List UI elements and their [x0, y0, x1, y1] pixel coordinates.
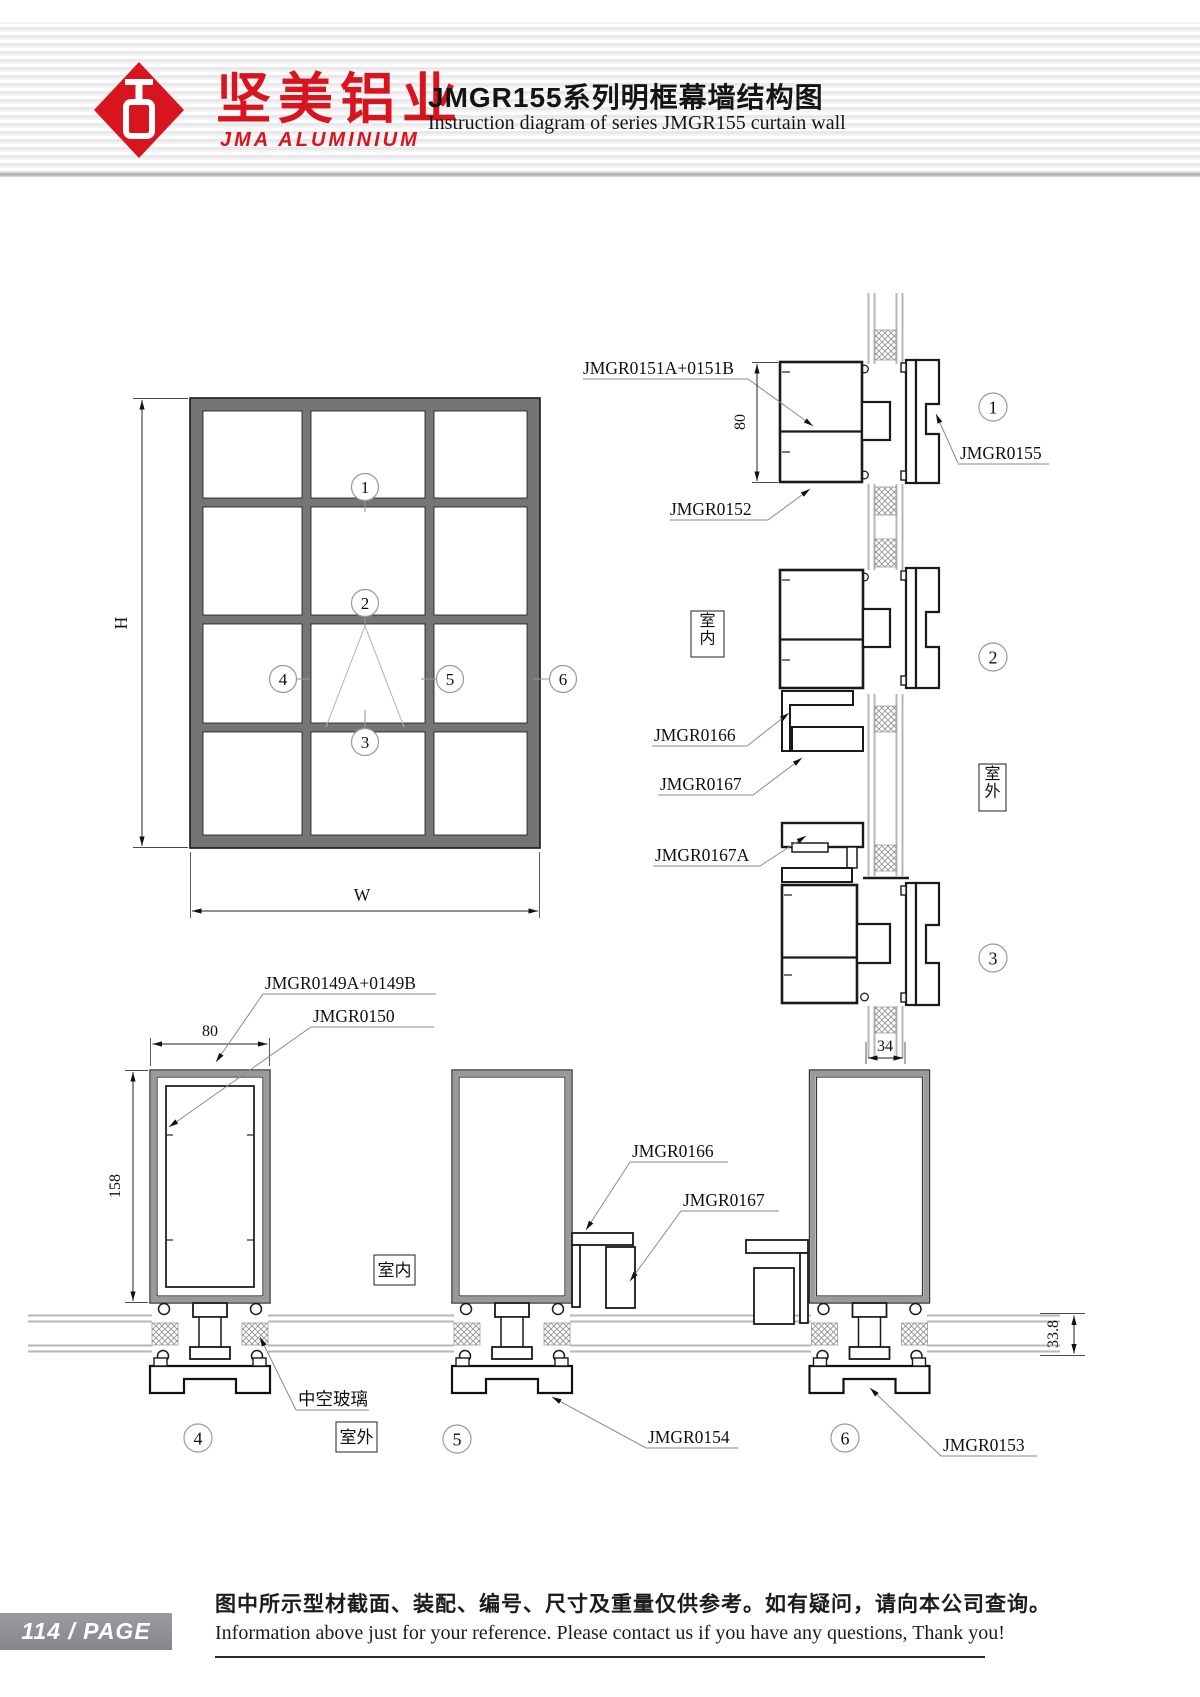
- detail-6-marker: 6: [841, 1429, 850, 1449]
- section-detail-5-structure: [452, 1070, 572, 1393]
- mullion-profile: [780, 362, 862, 482]
- vertical-section-details: JMGR0151A+0151B 80 JMGR0152 JMGR0155 1: [583, 293, 1049, 1064]
- elevation-drawing: H W 1 2 3: [111, 398, 577, 918]
- thermal-break-connector: [863, 609, 890, 647]
- dim-34: 34: [877, 1038, 893, 1055]
- label-jmgr0155: JMGR0155: [960, 443, 1042, 463]
- marker-6: 6: [559, 670, 568, 689]
- section-detail-2: 室内 JMGR0166 JMGR0167 室外 2: [652, 568, 1007, 811]
- footer-rule: [215, 1656, 985, 1658]
- mullion-profile: [780, 570, 863, 688]
- section-detail-6-structure: [810, 1070, 930, 1393]
- section-detail-1: JMGR0151A+0151B 80 JMGR0152 JMGR0155 1: [583, 358, 1049, 520]
- marker-1: 1: [361, 478, 370, 497]
- label-jmgr0154: JMGR0154: [648, 1427, 730, 1447]
- detail-5-attachment-profiles: [572, 1233, 635, 1308]
- label-jmgr0150: JMGR0150: [313, 1006, 395, 1026]
- detail-1-marker: 1: [989, 398, 998, 418]
- structure-diagram: H W 1 2 3: [0, 0, 1200, 1697]
- detail-3-marker: 3: [989, 949, 998, 969]
- label-insulated-glass: 中空玻璃: [298, 1389, 368, 1409]
- detail-5-marker: 5: [453, 1430, 462, 1450]
- outdoor-label-bottom: 室外: [340, 1428, 374, 1447]
- exterior-cap-profile: [901, 883, 939, 1005]
- dim-33-8: 33.8: [1045, 1320, 1062, 1348]
- detail-6-attachment-profiles: [746, 1240, 808, 1324]
- marker-5: 5: [446, 670, 455, 689]
- label-jmgr0167a: JMGR0167A: [655, 845, 750, 865]
- marker-3: 3: [361, 733, 370, 752]
- label-jmgr0149ab: JMGR0149A+0149B: [265, 973, 416, 993]
- page-number-badge: 114 / PAGE: [0, 1613, 172, 1650]
- exterior-cap-profile: [901, 568, 939, 688]
- dim-158: 158: [107, 1174, 124, 1198]
- label-jmgr0166: JMGR0166: [654, 725, 736, 745]
- catalog-page: 坚美铝业 JMA ALUMINIUM JMGR155系列明框幕墙结构图 Inst…: [0, 0, 1200, 1697]
- label-jmgr0166-bottom: JMGR0166: [632, 1141, 714, 1161]
- thermal-break-connector: [862, 402, 890, 440]
- label-jmgr0152: JMGR0152: [670, 499, 752, 519]
- dim-height-label: H: [111, 616, 131, 629]
- detail-4-marker: 4: [194, 1429, 203, 1449]
- plan-section-details: 80 158 33.8 JMGR0149A+0149B JMGR0150 室内 …: [28, 973, 1085, 1456]
- label-jmgr0151ab: JMGR0151A+0151B: [583, 358, 734, 378]
- label-jmgr0167: JMGR0167: [660, 774, 742, 794]
- outdoor-label: 室外: [984, 765, 1000, 801]
- marker-2: 2: [361, 594, 370, 613]
- profile-jmgr0167: [792, 727, 863, 751]
- dim-80: 80: [732, 414, 749, 430]
- footer-note-en: Information above just for your referenc…: [215, 1622, 1005, 1645]
- mullion-profile: [782, 885, 857, 1003]
- detail-2-marker: 2: [989, 648, 998, 668]
- thermal-break-connector: [857, 924, 890, 963]
- profile-jmgr0167a: [782, 868, 852, 882]
- footer-note-cn: 图中所示型材截面、装配、编号、尺寸及重量仅供参考。如有疑问，请向本公司查询。: [215, 1588, 1051, 1618]
- marker-4: 4: [279, 670, 288, 689]
- exterior-cap-profile: [901, 360, 939, 483]
- dim-width-label: W: [354, 885, 371, 905]
- section-detail-3: JMGR0167A 3 34: [653, 823, 1007, 1064]
- mullion-plan-structure: [150, 1070, 270, 1393]
- indoor-label: 室内: [699, 612, 715, 648]
- dim-80-bottom: 80: [202, 1023, 218, 1040]
- indoor-label-bottom: 室内: [378, 1261, 412, 1280]
- label-jmgr0153: JMGR0153: [943, 1435, 1025, 1455]
- label-jmgr0167-bottom: JMGR0167: [683, 1190, 765, 1210]
- dim-extension-lines-h: [133, 399, 188, 848]
